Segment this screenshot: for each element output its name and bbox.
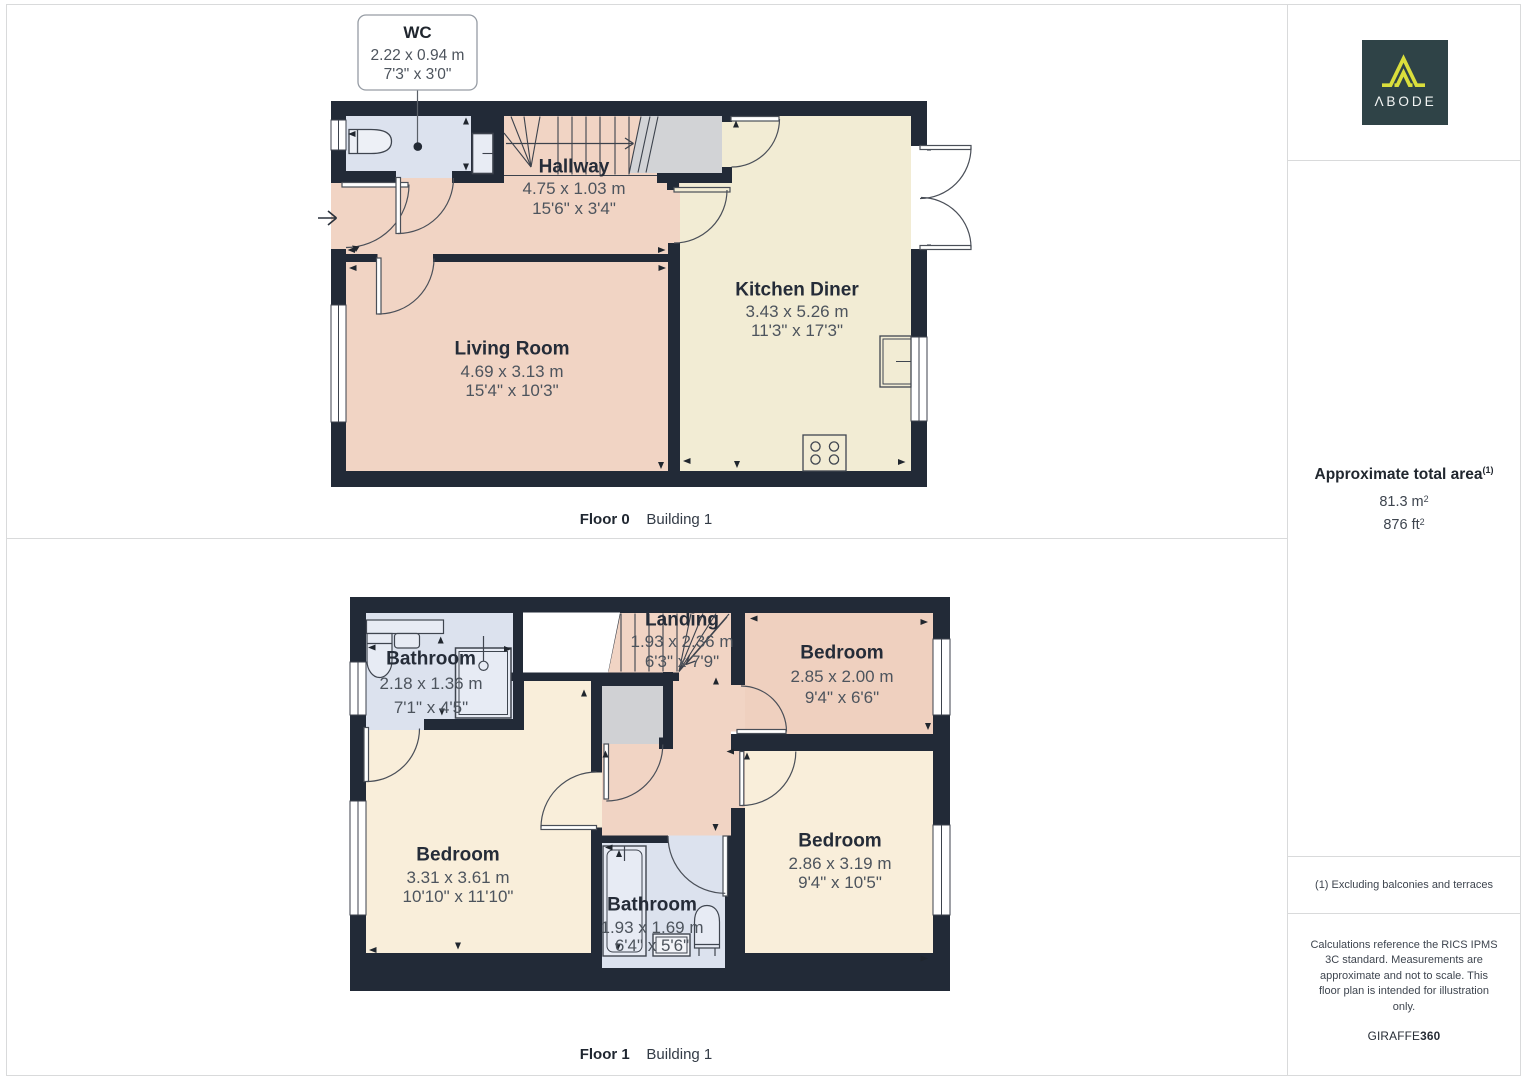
svg-text:15'6" x 3'4": 15'6" x 3'4" xyxy=(532,199,616,218)
svg-text:Landing: Landing xyxy=(645,610,719,631)
svg-text:6'3" x 7'9": 6'3" x 7'9" xyxy=(645,652,719,671)
svg-text:Living Room: Living Room xyxy=(454,339,569,360)
svg-text:Bedroom: Bedroom xyxy=(800,643,883,664)
svg-text:6'4" x 5'6": 6'4" x 5'6" xyxy=(615,936,689,955)
svg-text:4.75 x 1.03 m: 4.75 x 1.03 m xyxy=(522,179,625,198)
svg-text:2.86 x 3.19 m: 2.86 x 3.19 m xyxy=(788,854,891,873)
svg-text:Bathroom: Bathroom xyxy=(386,649,476,670)
svg-text:2.22 x 0.94 m: 2.22 x 0.94 m xyxy=(371,47,465,64)
svg-text:11'3" x 17'3": 11'3" x 17'3" xyxy=(751,321,843,340)
svg-text:ΛBODE: ΛBODE xyxy=(1374,94,1436,109)
svg-text:Bedroom: Bedroom xyxy=(416,845,499,866)
svg-text:2.18 x 1.36 m: 2.18 x 1.36 m xyxy=(379,674,482,693)
svg-text:Bedroom: Bedroom xyxy=(798,831,881,852)
svg-text:9'4" x 10'5": 9'4" x 10'5" xyxy=(798,873,882,892)
svg-text:Kitchen Diner: Kitchen Diner xyxy=(735,280,859,301)
svg-text:4.69 x 3.13 m: 4.69 x 3.13 m xyxy=(460,362,563,381)
svg-text:2.85 x 2.00 m: 2.85 x 2.00 m xyxy=(790,667,893,686)
svg-text:15'4" x 10'3": 15'4" x 10'3" xyxy=(465,381,558,400)
svg-text:7'1" x 4'5": 7'1" x 4'5" xyxy=(394,698,468,717)
svg-text:7'3" x 3'0": 7'3" x 3'0" xyxy=(384,66,452,83)
svg-text:10'10" x 11'10": 10'10" x 11'10" xyxy=(403,887,514,906)
svg-text:1.93 x 2.36 m: 1.93 x 2.36 m xyxy=(630,632,733,651)
svg-text:WC: WC xyxy=(403,23,431,42)
svg-text:Hallway: Hallway xyxy=(539,157,610,178)
svg-text:3.43 x 5.26 m: 3.43 x 5.26 m xyxy=(745,302,848,321)
svg-text:Bathroom: Bathroom xyxy=(607,895,697,916)
svg-text:3.31 x 3.61 m: 3.31 x 3.61 m xyxy=(406,868,509,887)
svg-text:9'4" x 6'6": 9'4" x 6'6" xyxy=(805,688,879,707)
svg-text:1.93 x 1.69 m: 1.93 x 1.69 m xyxy=(600,918,703,937)
